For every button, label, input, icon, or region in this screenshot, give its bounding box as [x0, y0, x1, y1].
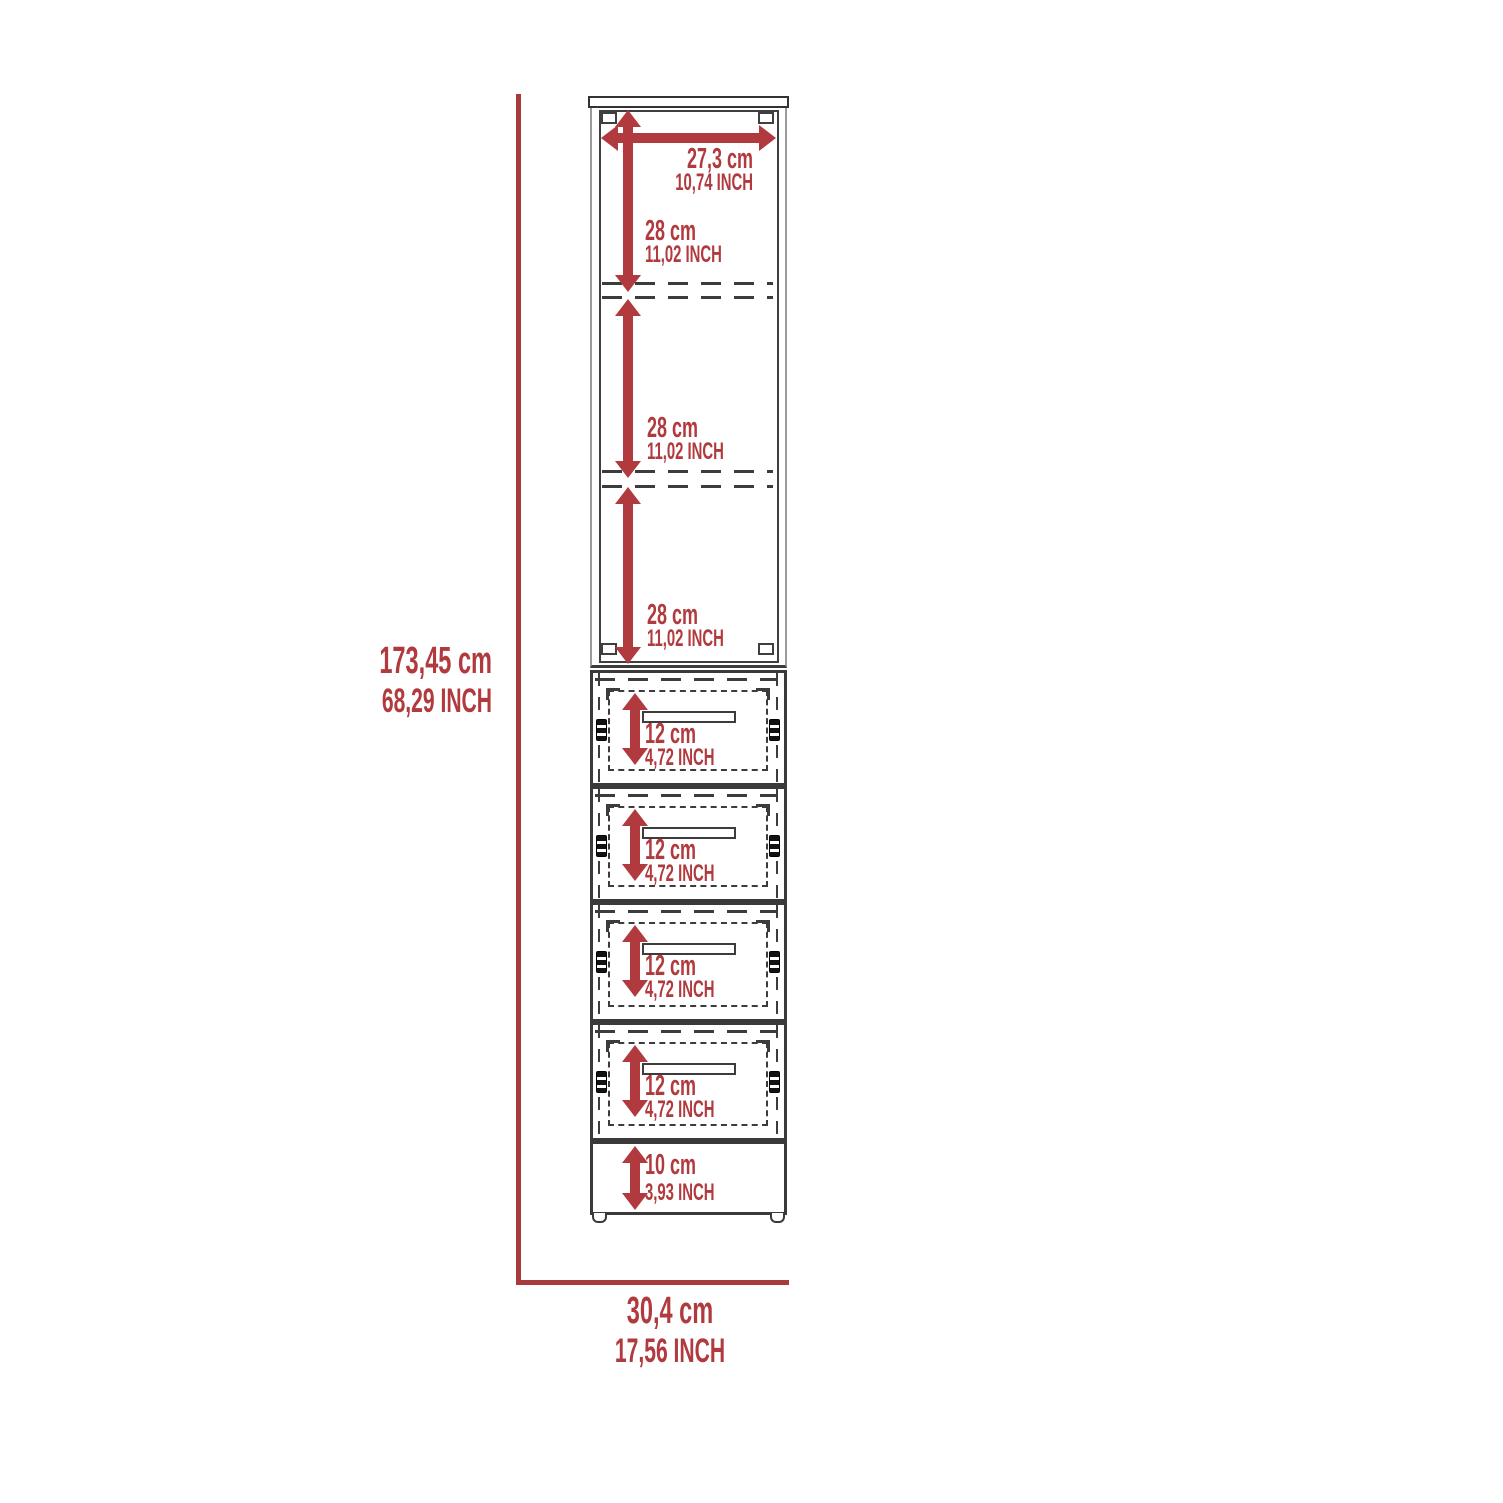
drawer-slide-left-icon [596, 951, 607, 973]
drawer-4: 12 cm 4,72 INCH [590, 1022, 787, 1141]
cabinet-top-panel [588, 96, 789, 108]
drawer-1-label: 12 cm 4,72 INCH [645, 723, 714, 769]
interior-width-label: 27,3 cm 10,74 INCH [660, 148, 753, 194]
base-cm: 10 cm [645, 1152, 714, 1179]
arrow-shaft [630, 1060, 640, 1102]
base-inch: 3,93 INCH [645, 1179, 714, 1206]
drawer-2-label: 12 cm 4,72 INCH [645, 839, 714, 885]
shelf-section-2-cm: 28 cm [647, 417, 724, 440]
shelf-section-2-label: 28 cm 11,02 INCH [647, 417, 724, 463]
drawer-2-cm: 12 cm [645, 839, 714, 862]
drawer-slide-left-icon [596, 1071, 607, 1093]
drawer-slide-right-icon [769, 835, 780, 857]
overall-width-cm: 30,4 cm [577, 1291, 763, 1331]
drawer-3-cm: 12 cm [645, 955, 714, 978]
drawer-4-inch: 4,72 INCH [645, 1098, 714, 1121]
drawer-corner-bracket-right [756, 804, 770, 816]
interior-width-cm: 27,3 cm [660, 148, 753, 171]
arrow-shaft [630, 1161, 640, 1195]
drawer-1-cm: 12 cm [645, 723, 714, 746]
shelf-section-3-label: 28 cm 11,02 INCH [647, 604, 724, 650]
drawer-corner-bracket-right [756, 920, 770, 932]
shelf-section-1-cm: 28 cm [645, 220, 722, 243]
shelf-section-3-cm: 28 cm [647, 604, 724, 627]
drawer-slide-right-icon [769, 719, 780, 741]
overall-width-label: 30,4 cm 17,56 INCH [577, 1291, 763, 1371]
drawer-3-label: 12 cm 4,72 INCH [645, 955, 714, 1001]
drawer-corner-bracket-right [756, 688, 770, 700]
drawer-top-dashed-line [595, 1030, 776, 1033]
arrow-shaft [630, 824, 640, 866]
drawer-corner-bracket-right [756, 1040, 770, 1052]
cabinet-door-section: 27,3 cm 10,74 INCH 28 cm 11,02 INCH 28 c… [590, 108, 787, 668]
arrow-shaft [623, 502, 633, 649]
shelf-section-1-inch: 11,02 INCH [645, 243, 722, 266]
shelf-section-2-inch: 11,02 INCH [647, 440, 724, 463]
drawer-corner-bracket-left [606, 688, 620, 700]
drawer-top-dashed-line [595, 910, 776, 913]
drawer-4-cm: 12 cm [645, 1075, 714, 1098]
drawer-top-dashed-line [595, 794, 776, 797]
drawer-2: 12 cm 4,72 INCH [590, 786, 787, 902]
base-label: 10 cm 3,93 INCH [645, 1152, 714, 1206]
shelf-section-1-label: 28 cm 11,02 INCH [645, 220, 722, 266]
drawer-corner-bracket-left [606, 920, 620, 932]
drawer-1-inch: 4,72 INCH [645, 746, 714, 769]
shelf-section-2-arrow-icon [615, 299, 641, 478]
hinge-top-right [758, 112, 774, 124]
drawer-1: 12 cm 4,72 INCH [590, 670, 787, 786]
drawer-corner-bracket-left [606, 1040, 620, 1052]
dimension-diagram-canvas: 173,45 cm 68,29 INCH 30,4 cm 17,56 INCH … [0, 0, 1503, 1503]
cabinet-foot-right [770, 1213, 785, 1223]
drawer-3-inch: 4,72 INCH [645, 978, 714, 1001]
overall-height-inch: 68,29 INCH [306, 681, 492, 721]
overall-height-cm: 173,45 cm [306, 641, 492, 681]
interior-width-inch: 10,74 INCH [660, 171, 753, 194]
shelf-section-1-arrow-icon [615, 110, 641, 292]
drawer-slide-left-icon [596, 719, 607, 741]
arrow-shaft [623, 314, 633, 463]
cabinet-foot-left [592, 1213, 607, 1223]
drawer-corner-bracket-left [606, 804, 620, 816]
arrow-shaft [630, 940, 640, 982]
drawer-slide-right-icon [769, 951, 780, 973]
shelf-section-3-inch: 11,02 INCH [647, 627, 724, 650]
drawer-2-inch: 4,72 INCH [645, 862, 714, 885]
cabinet-base-section: 10 cm 3,93 INCH [590, 1141, 787, 1215]
shelf-section-3-arrow-icon [615, 487, 641, 664]
hinge-bottom-right [758, 643, 774, 655]
drawer-top-dashed-line [595, 678, 776, 681]
drawer-slide-right-icon [769, 1071, 780, 1093]
arrow-shaft [630, 708, 640, 750]
drawer-3: 12 cm 4,72 INCH [590, 902, 787, 1022]
arrow-shaft [623, 125, 633, 277]
overall-width-dimension-line [516, 1280, 789, 1285]
overall-height-label: 173,45 cm 68,29 INCH [306, 641, 492, 721]
overall-height-dimension-line [516, 94, 521, 1285]
drawer-slide-left-icon [596, 835, 607, 857]
overall-width-inch: 17,56 INCH [577, 1331, 763, 1371]
drawer-4-label: 12 cm 4,72 INCH [645, 1075, 714, 1121]
